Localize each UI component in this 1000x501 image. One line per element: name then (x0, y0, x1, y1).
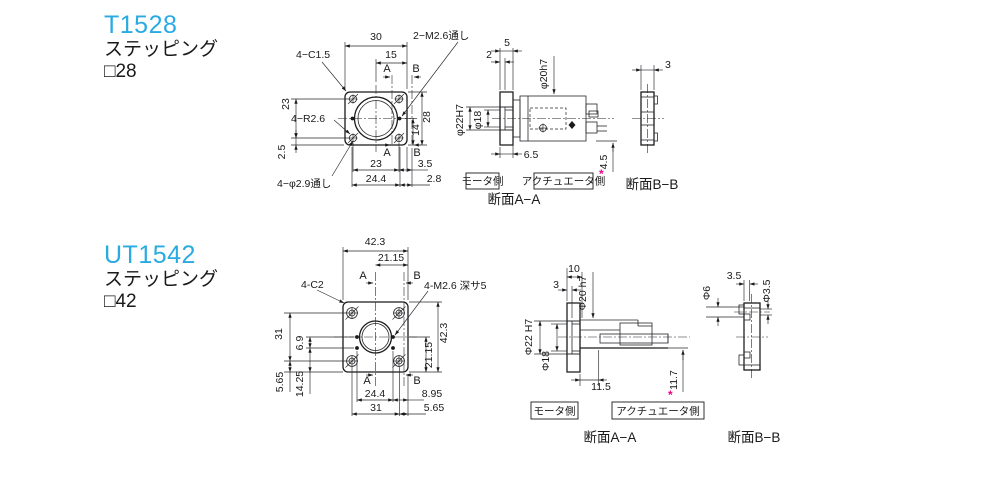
t1528-locating-mark (569, 121, 576, 129)
ut1542-tap-hole (355, 346, 359, 350)
ut1542-corner-hole (393, 307, 406, 320)
section-mark-a: A (383, 147, 391, 159)
t1528-section-bb: 3 断面B−B (626, 59, 679, 192)
section-mark-b: B (412, 63, 419, 75)
t1528-corner-hole (394, 94, 404, 104)
t1528-section-aa: 5 2 φ20h7 φ22H7 φ18 6.5 4.5 * モータ側 アクチュエ… (454, 37, 617, 207)
dim-15: 15 (385, 49, 397, 61)
section-aa-caption: 断面A−A (488, 192, 541, 207)
actuator-side-label: アクチュエータ側 (616, 405, 699, 418)
technical-drawing: 30 15 A B 2−M2.6通し 4−C1.5 23 4−R2.6 2.5 … (0, 0, 1000, 501)
drawing-canvas: T1528 ステッピング □28 UT1542 ステッピング □42 (0, 0, 1000, 501)
dim-bore-dia: Φ22 H7 (523, 319, 535, 356)
dim-42p3-right: 42.3 (438, 323, 450, 344)
dim-31-left: 31 (273, 328, 285, 340)
section-mark-b: B (413, 375, 420, 387)
dim-31-bottom: 31 (370, 402, 382, 414)
section-mark-b: B (413, 270, 420, 282)
ut1542-corner-hole (393, 355, 406, 368)
dim-11p5: 11.5 (591, 381, 611, 393)
dim-shaft-dia: φ20h7 (538, 59, 550, 89)
note-radius: 4−R2.6 (291, 113, 325, 125)
dim-5: 5 (504, 37, 510, 49)
dim-2: 2 (486, 49, 492, 61)
ut1542-bb-plate (744, 303, 760, 370)
t1528-corner-hole (394, 133, 404, 143)
dim-21p15: 21.15 (378, 252, 404, 264)
t1528-corner-hole (348, 94, 358, 104)
ut1542-tap-hole (391, 346, 395, 350)
dim-14: 14 (410, 124, 422, 136)
dim-inner-dia: Φ18 (540, 351, 552, 371)
motor-side-label: モータ側 (462, 175, 504, 188)
dim-phi6: Φ6 (701, 286, 713, 300)
footnote-asterisk: * (668, 388, 673, 402)
dim-3p5: 3.5 (418, 158, 433, 170)
dim-3: 3 (553, 279, 559, 291)
note-chamfer: 4−C1.5 (296, 49, 330, 61)
dim-11p7: 11.7 (668, 370, 680, 390)
ut1542-section-flange (567, 303, 580, 372)
dim-2p8: 2.8 (427, 173, 442, 185)
dim-8p95: 8.95 (422, 388, 443, 400)
dim-28: 28 (421, 111, 433, 123)
motor-side-label: モータ側 (534, 405, 576, 418)
dim-21p15-right: 21.15 (423, 342, 435, 368)
dim-10: 10 (568, 263, 580, 275)
ut1542-corner-hole (346, 307, 359, 320)
ut1542-front-view: 42.3 21.15 A B 4-C2 4-M2.6 深サ5 31 6.9 5.… (273, 236, 487, 416)
ut1542-section-aa: 3 10 Φ20 h7 Φ22 H7 Φ18 11.5 11.7 * モータ側 … (523, 263, 704, 445)
note-tap-depth: 4-M2.6 深サ5 (424, 280, 487, 292)
dim-42p3: 42.3 (365, 236, 386, 248)
dim-shaft-dia: Φ20 h7 (577, 276, 589, 311)
dim-3p5: 3.5 (727, 270, 742, 282)
section-mark-a: A (363, 375, 371, 387)
dim-23-left: 23 (280, 98, 292, 110)
dim-5p65-bottom: 5.65 (424, 402, 445, 414)
t1528-tap-hole (398, 117, 402, 121)
dim-14p25: 14.25 (294, 371, 306, 397)
section-bb-caption: 断面B−B (728, 430, 781, 445)
dim-phi3p5: Φ3.5 (761, 279, 773, 302)
dim-3: 3 (665, 59, 671, 71)
section-aa-caption: 断面A−A (584, 430, 637, 445)
ut1542-section-bb: 3.5 Φ6 Φ3.5 断面B−B (701, 270, 780, 445)
note-hole-through: 4−φ2.9通し (277, 178, 331, 190)
dim-2p5: 2.5 (276, 145, 288, 160)
ut1542-corner-hole (346, 355, 359, 368)
dim-6p5: 6.5 (524, 149, 539, 161)
actuator-side-label: アクチュエータ側 (522, 175, 605, 188)
t1528-front-view: 30 15 A B 2−M2.6通し 4−C1.5 23 4−R2.6 2.5 … (276, 30, 469, 190)
t1528-tap-hole (351, 117, 355, 121)
dim-6p9: 6.9 (294, 336, 306, 351)
dim-30: 30 (370, 31, 382, 43)
dim-24p4: 24.4 (365, 388, 386, 400)
ut1542-tap-hole (391, 335, 395, 339)
section-mark-a: A (359, 270, 367, 282)
note-chamfer: 4-C2 (301, 279, 324, 291)
dim-24p4: 24.4 (366, 173, 387, 185)
dim-inner-dia: φ18 (472, 111, 484, 130)
ut1542-tap-hole (355, 335, 359, 339)
note-tap-through: 2−M2.6通し (413, 30, 469, 42)
dim-5p65-left: 5.65 (274, 372, 286, 393)
ut1542-actuator-body (580, 320, 668, 348)
dim-bore-dia: φ22H7 (454, 104, 466, 136)
dim-23-bottom: 23 (370, 158, 382, 170)
section-bb-caption: 断面B−B (626, 177, 679, 192)
section-mark-a: A (383, 63, 391, 75)
